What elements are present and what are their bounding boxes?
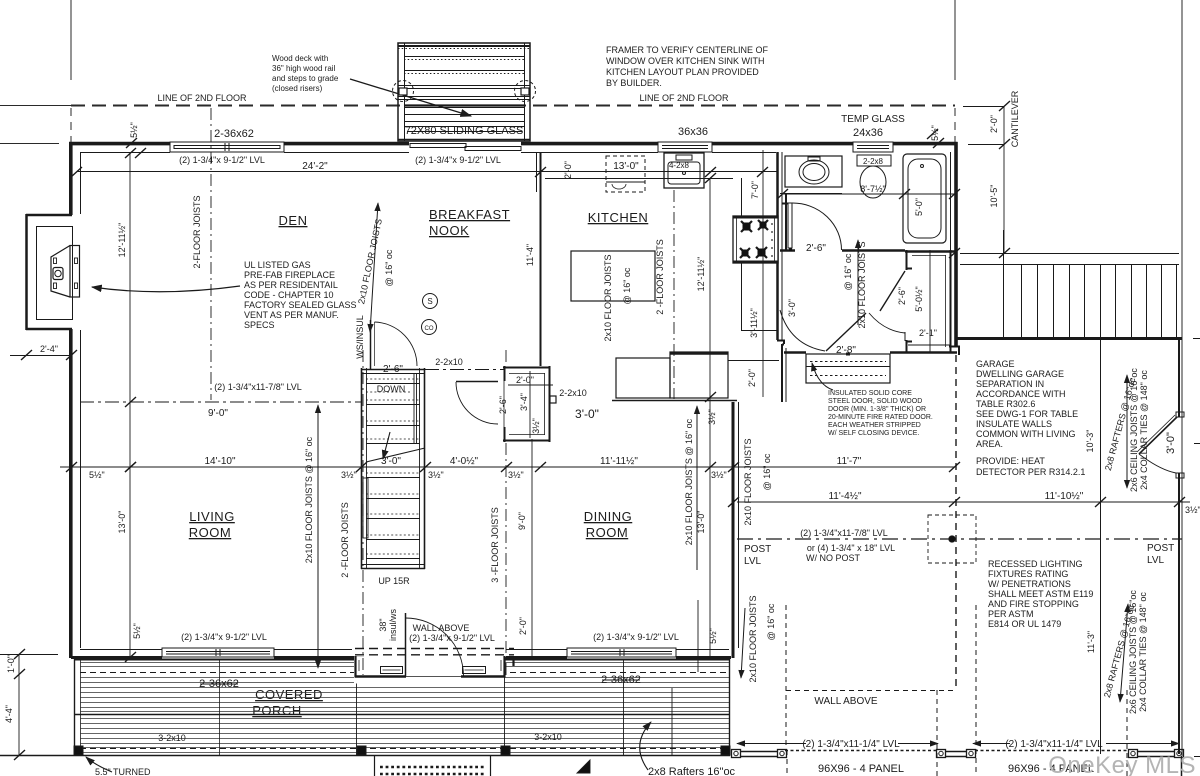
svg-text:or (4) 1-3/4" x 18" LVL: or (4) 1-3/4" x 18" LVL: [807, 543, 895, 553]
svg-text:2'-4": 2'-4": [40, 344, 58, 354]
svg-text:FACTORY SEALED GLASS: FACTORY SEALED GLASS: [244, 300, 357, 310]
svg-text:2x10 FLOOR JOISTS @ 16" oc: 2x10 FLOOR JOISTS @ 16" oc: [304, 436, 314, 563]
svg-text:3½": 3½": [428, 470, 444, 480]
svg-text:5½": 5½": [129, 122, 139, 138]
svg-text:3 -FLOOR JOISTS: 3 -FLOOR JOISTS: [490, 507, 500, 583]
svg-text:2x8 Rafters 16"oc: 2x8 Rafters 16"oc: [648, 766, 736, 776]
svg-text:PORCH: PORCH: [252, 703, 301, 718]
svg-text:2-2x10: 2-2x10: [559, 388, 587, 398]
svg-text:W/ NO POST: W/ NO POST: [806, 553, 861, 563]
svg-text:3'-11½": 3'-11½": [749, 308, 759, 338]
svg-text:PER ASTM: PER ASTM: [988, 609, 1034, 619]
svg-text:SPECS: SPECS: [244, 320, 275, 330]
svg-text:3½": 3½": [707, 409, 717, 425]
svg-text:BREAKFAST: BREAKFAST: [429, 207, 510, 222]
svg-text:2'-8": 2'-8": [836, 345, 856, 356]
svg-text:(2) 1-3/4"x11-7/8" LVL: (2) 1-3/4"x11-7/8" LVL: [214, 382, 302, 392]
svg-text:SEPARATION IN: SEPARATION IN: [976, 379, 1044, 389]
svg-text:3½": 3½": [711, 470, 727, 480]
svg-text:WINDOW OVER KITCHEN SINK WITH: WINDOW OVER KITCHEN SINK WITH: [606, 56, 765, 66]
svg-text:36x36: 36x36: [678, 126, 708, 138]
svg-text:FIXTURES RATING: FIXTURES RATING: [988, 569, 1068, 579]
svg-text:2 -FLOOR JOISTS: 2 -FLOOR JOISTS: [340, 502, 350, 578]
svg-text:2'-6": 2'-6": [806, 243, 826, 254]
svg-text:S: S: [427, 297, 432, 306]
svg-text:(2) 1-3/4"x11-1/4" LVL: (2) 1-3/4"x11-1/4" LVL: [802, 739, 900, 750]
svg-text:9'-0": 9'-0": [517, 512, 527, 530]
svg-text:DWELLING GARAGE: DWELLING GARAGE: [976, 369, 1064, 379]
svg-text:5½": 5½": [930, 125, 940, 141]
svg-text:(2) 1-3/4"x 9-1/2" LVL: (2) 1-3/4"x 9-1/2" LVL: [593, 632, 679, 642]
svg-text:NOOK: NOOK: [429, 223, 469, 238]
svg-text:20-MINUTE FIRE RATED DOOR.: 20-MINUTE FIRE RATED DOOR.: [828, 414, 933, 421]
svg-text:DEN: DEN: [279, 213, 308, 228]
svg-text:LIVING: LIVING: [189, 509, 235, 524]
svg-text:4'-0½": 4'-0½": [450, 456, 479, 467]
svg-text:@ 16" oc: @ 16" oc: [762, 453, 772, 490]
svg-text:5½": 5½": [89, 470, 105, 480]
svg-text:VENT AS PER MANUF.: VENT AS PER MANUF.: [244, 310, 339, 320]
svg-text:2'-6": 2'-6": [498, 396, 508, 414]
svg-text:ROOM: ROOM: [189, 525, 231, 540]
svg-text:(2) 1-3/4"x 9-1/2" LVL: (2) 1-3/4"x 9-1/2" LVL: [409, 633, 495, 643]
svg-text:CO: CO: [425, 326, 434, 332]
svg-text:UL LISTED GAS: UL LISTED GAS: [244, 260, 311, 270]
svg-text:UP 15R: UP 15R: [378, 576, 410, 586]
svg-text:GARAGE: GARAGE: [976, 359, 1015, 369]
svg-text:2'-1": 2'-1": [919, 328, 937, 338]
svg-text:AND FIRE STOPPING: AND FIRE STOPPING: [988, 599, 1079, 609]
svg-text:TABLE R302.6: TABLE R302.6: [976, 399, 1035, 409]
svg-text:DOOR (MIN. 1-3/8" THICK) OR: DOOR (MIN. 1-3/8" THICK) OR: [828, 406, 926, 413]
svg-text:@ 16" oc: @ 16" oc: [766, 603, 776, 640]
svg-text:13'-0": 13'-0": [117, 511, 127, 534]
svg-text:LVL: LVL: [1147, 555, 1164, 566]
svg-text:PRE-FAB FIREPLACE: PRE-FAB FIREPLACE: [244, 270, 335, 280]
svg-text:POST: POST: [1147, 543, 1174, 554]
svg-text:W/ PENETRATIONS: W/ PENETRATIONS: [988, 579, 1071, 589]
svg-text:(closed risers): (closed risers): [272, 84, 323, 93]
svg-text:2'-0": 2'-0": [563, 161, 573, 179]
svg-text:3'-0": 3'-0": [787, 299, 797, 317]
svg-text:and steps to grade: and steps to grade: [272, 74, 339, 83]
svg-text:38": 38": [378, 618, 388, 631]
svg-text:1'-0": 1'-0": [6, 655, 16, 673]
svg-text:11'-4": 11'-4": [525, 244, 535, 266]
svg-text:OneKey MLS: OneKey MLS: [1048, 752, 1196, 776]
svg-text:5'-0½": 5'-0½": [914, 286, 924, 311]
svg-text:24x36: 24x36: [853, 127, 883, 139]
svg-text:INSULATE WALLS: INSULATE WALLS: [976, 419, 1052, 429]
svg-text:4'-4": 4'-4": [4, 705, 14, 723]
svg-text:TEMP GLASS: TEMP GLASS: [841, 114, 905, 125]
svg-text:CANTILEVER: CANTILEVER: [1010, 90, 1020, 147]
svg-text:2x4 COLLAR TIES @ 148" oc: 2x4 COLLAR TIES @ 148" oc: [1138, 592, 1148, 712]
svg-text:(2) 1-3/4"x11-7/8" LVL: (2) 1-3/4"x11-7/8" LVL: [800, 528, 888, 538]
svg-text:LINE OF 2ND FLOOR: LINE OF 2ND FLOOR: [157, 93, 247, 103]
svg-text:(2) 1-3/4"x 9-1/2" LVL: (2) 1-3/4"x 9-1/2" LVL: [179, 155, 265, 165]
svg-text:SHALL MEET ASTM E119: SHALL MEET ASTM E119: [988, 589, 1093, 599]
svg-text:3½": 3½": [341, 470, 357, 480]
svg-text:9'-0": 9'-0": [208, 408, 228, 419]
svg-text:2'-6": 2'-6": [383, 364, 403, 375]
svg-text:8'-7½": 8'-7½": [860, 184, 885, 194]
svg-text:13'-0": 13'-0": [613, 161, 639, 172]
svg-text:KITCHEN LAYOUT PLAN PROVIDED: KITCHEN LAYOUT PLAN PROVIDED: [606, 67, 759, 77]
svg-text:COMMON WITH LIVING: COMMON WITH LIVING: [976, 429, 1076, 439]
svg-text:DINING: DINING: [584, 509, 633, 524]
svg-text:(2) 1-3/4"x 9-1/2" LVL: (2) 1-3/4"x 9-1/2" LVL: [181, 632, 267, 642]
svg-text:5½": 5½": [708, 628, 718, 644]
svg-text:WALL ABOVE: WALL ABOVE: [413, 623, 470, 633]
svg-text:(2) 1-3/4"x 9-1/2" LVL: (2) 1-3/4"x 9-1/2" LVL: [415, 155, 501, 165]
svg-text:2x10 FLOOR JOISTS: 2x10 FLOOR JOISTS: [748, 595, 758, 682]
svg-text:AREA.: AREA.: [976, 439, 1003, 449]
svg-text:2x6 CEILING JOISTS @ 16"oc: 2x6 CEILING JOISTS @ 16"oc: [1129, 368, 1139, 492]
svg-text:2-FLOOR JOISTS: 2-FLOOR JOISTS: [192, 195, 202, 268]
svg-text:EACH WEATHER STRIPPED: EACH WEATHER STRIPPED: [828, 422, 921, 429]
svg-text:RECESSED LIGHTING: RECESSED LIGHTING: [988, 559, 1083, 569]
svg-text:W/ SELF CLOSING DEVICE.: W/ SELF CLOSING DEVICE.: [828, 430, 919, 437]
svg-text:4-2x8: 4-2x8: [669, 161, 690, 170]
svg-text:3'-4": 3'-4": [519, 393, 529, 411]
svg-text:36" high wood rail: 36" high wood rail: [272, 64, 336, 73]
svg-text:2'-6": 2'-6": [897, 287, 907, 305]
svg-text:2'-0": 2'-0": [518, 617, 528, 635]
svg-text:PROVIDE: HEAT: PROVIDE: HEAT: [976, 456, 1045, 466]
svg-text:2-2x8: 2-2x8: [863, 157, 884, 166]
svg-text:2x10 FLOOR JOISTS: 2x10 FLOOR JOISTS: [603, 254, 613, 341]
svg-text:3½": 3½": [508, 470, 524, 480]
svg-text:2-2x10: 2-2x10: [435, 357, 463, 367]
svg-text:3-2x10: 3-2x10: [158, 733, 186, 743]
svg-text:12'-11½": 12'-11½": [117, 223, 127, 258]
svg-text:11'-11½": 11'-11½": [600, 456, 638, 467]
svg-text:3½": 3½": [1185, 505, 1200, 515]
svg-text:2x10 FLOOR JOISTS @ 16" oc: 2x10 FLOOR JOISTS @ 16" oc: [684, 418, 694, 545]
svg-text:@ 16" oc: @ 16" oc: [384, 249, 394, 286]
svg-text:@ 16" oc: @ 16" oc: [843, 253, 853, 290]
svg-text:CODE - CHAPTER 10: CODE - CHAPTER 10: [244, 290, 334, 300]
svg-text:2'-0": 2'-0": [989, 115, 999, 133]
svg-text:2x6 CEILING JOISTS @ 16"oc: 2x6 CEILING JOISTS @ 16"oc: [1128, 590, 1138, 714]
svg-text:COVERED: COVERED: [255, 687, 323, 702]
svg-text:AS PER RESIDENTAIL: AS PER RESIDENTAIL: [244, 280, 338, 290]
svg-text:Wood deck with: Wood deck with: [272, 54, 328, 63]
svg-text:INSULATED SOLID CORE: INSULATED SOLID CORE: [828, 390, 912, 397]
svg-text:2x4 COLLAR TIES @ 148" oc: 2x4 COLLAR TIES @ 148" oc: [1139, 370, 1149, 490]
svg-text:3'-0": 3'-0": [575, 407, 599, 421]
svg-text:2x10 FLOOR JOISTS: 2x10 FLOOR JOISTS: [743, 438, 753, 525]
svg-text:2'-0": 2'-0": [516, 375, 534, 385]
svg-text:BY BUILDER.: BY BUILDER.: [606, 78, 662, 88]
svg-text:DOWN: DOWN: [377, 384, 406, 394]
svg-text:11'-10½": 11'-10½": [1045, 491, 1084, 502]
svg-text:24'-2": 24'-2": [302, 161, 328, 172]
svg-text:3-2x10: 3-2x10: [534, 732, 562, 742]
svg-text:11'-3": 11'-3": [1086, 631, 1096, 653]
svg-text:LINE OF 2ND FLOOR: LINE OF 2ND FLOOR: [639, 93, 729, 103]
svg-text:DETECTOR PER R314.2.1: DETECTOR PER R314.2.1: [976, 467, 1085, 477]
svg-text:2-36x62: 2-36x62: [214, 128, 254, 140]
svg-text:STEEL DOOR, SOLID WOOD: STEEL DOOR, SOLID WOOD: [828, 398, 922, 405]
svg-text:3½": 3½": [531, 418, 541, 434]
svg-text:E814 OR UL 1479: E814 OR UL 1479: [988, 619, 1061, 629]
svg-text:(2) 1-3/4"x11-1/4" LVL: (2) 1-3/4"x11-1/4" LVL: [1005, 739, 1103, 750]
svg-text:11'-4½": 11'-4½": [828, 491, 862, 502]
svg-text:2 -FLOOR JOISTS: 2 -FLOOR JOISTS: [655, 239, 665, 315]
svg-text:96X96 - 4 PANEL: 96X96 - 4 PANEL: [818, 763, 904, 775]
svg-text:3'-0": 3'-0": [381, 456, 401, 467]
svg-text:10'-5": 10'-5": [989, 185, 999, 208]
svg-text:ROOM: ROOM: [586, 525, 628, 540]
svg-text:WS/INSUL: WS/INSUL: [355, 315, 365, 359]
svg-text:LVL: LVL: [744, 556, 761, 567]
svg-text:7'-0": 7'-0": [750, 181, 760, 199]
svg-text:11'-7": 11'-7": [837, 456, 862, 467]
svg-text:SEE DWG-1 FOR TABLE: SEE DWG-1 FOR TABLE: [976, 409, 1078, 419]
svg-text:12'-11½": 12'-11½": [696, 257, 706, 292]
svg-text:WALL ABOVE: WALL ABOVE: [814, 696, 878, 707]
svg-text:@ 16" oc: @ 16" oc: [622, 267, 632, 304]
svg-text:2'-0": 2'-0": [747, 369, 757, 387]
svg-text:FRAMER TO VERIFY CENTERLINE OF: FRAMER TO VERIFY CENTERLINE OF: [606, 45, 769, 55]
svg-text:3'-0": 3'-0": [1165, 432, 1177, 454]
svg-text:14'-10": 14'-10": [204, 456, 235, 467]
svg-text:ACCORDANCE WITH: ACCORDANCE WITH: [976, 389, 1066, 399]
svg-text:POST: POST: [744, 544, 771, 555]
svg-text:5½": 5½": [132, 623, 142, 639]
svg-text:5'-0": 5'-0": [914, 198, 924, 216]
svg-text:10'-3": 10'-3": [1085, 430, 1095, 453]
svg-text:insul/ws: insul/ws: [388, 608, 398, 641]
svg-text:KITCHEN: KITCHEN: [588, 210, 649, 225]
